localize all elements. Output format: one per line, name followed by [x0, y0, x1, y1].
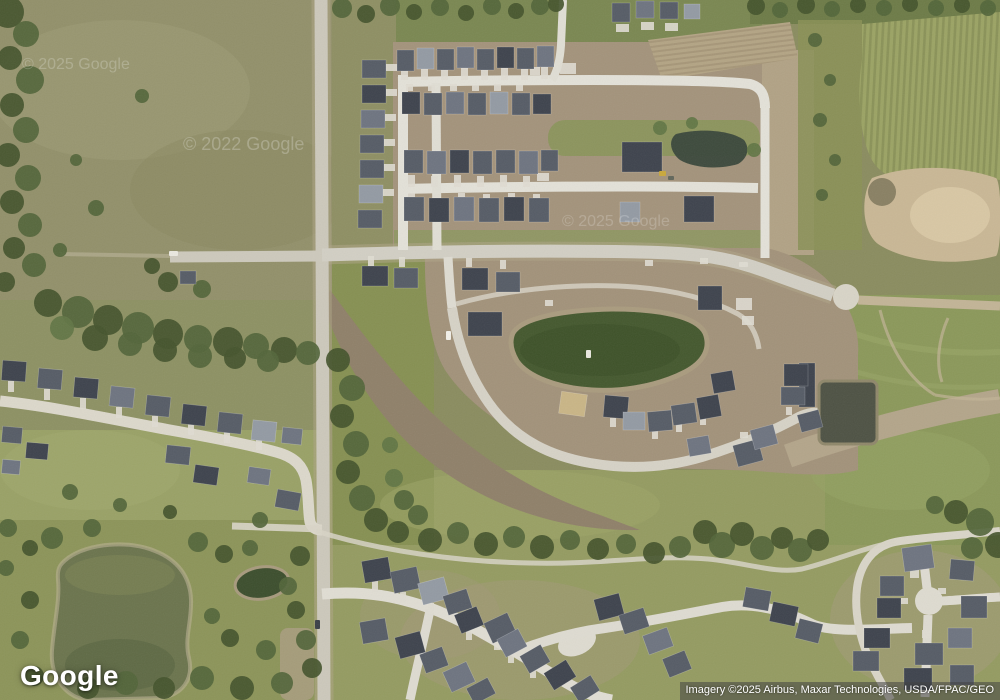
driveway-pad [736, 298, 752, 310]
driveway-pad [408, 175, 415, 187]
driveway-pad [500, 260, 506, 269]
tree [135, 89, 149, 103]
tree [530, 535, 554, 559]
house [281, 427, 303, 445]
tree [18, 213, 42, 237]
tree [339, 375, 365, 401]
driveway-pad [541, 67, 548, 79]
tree [944, 500, 968, 524]
tree [256, 640, 276, 660]
tree [290, 546, 310, 566]
house [915, 643, 943, 665]
house [402, 92, 420, 114]
driveway-pad [428, 85, 435, 91]
house [742, 587, 771, 611]
tree [83, 519, 101, 537]
tree [587, 538, 609, 560]
tree [22, 253, 46, 277]
driveway-pad [384, 164, 395, 171]
house [864, 628, 890, 648]
driveway-pad [472, 85, 479, 91]
house [359, 185, 383, 203]
driveway-pad [80, 398, 86, 409]
tree [163, 505, 177, 519]
house [519, 151, 538, 174]
tree [153, 677, 175, 699]
driveway-pad [401, 70, 408, 80]
tree [287, 601, 305, 619]
rect-basin [819, 381, 877, 444]
tree [252, 512, 268, 528]
driveway-pad [450, 84, 457, 91]
driveway-pad [786, 407, 792, 415]
house [404, 150, 423, 173]
house [457, 47, 474, 68]
tree [41, 527, 63, 549]
vehicle [668, 176, 674, 180]
tree [829, 154, 841, 166]
driveway-pad [922, 630, 930, 638]
house [37, 368, 63, 390]
driveway-pad [441, 70, 448, 80]
tree [730, 522, 754, 546]
house [687, 435, 712, 457]
house [877, 598, 901, 618]
tree [34, 289, 62, 317]
tree [242, 540, 258, 556]
map-watermark: © 2022 Google [183, 134, 304, 154]
driveway-pad [400, 592, 406, 603]
driveway-pad [537, 173, 549, 181]
street-spur [232, 526, 322, 529]
house [559, 391, 588, 416]
house [362, 266, 388, 286]
tree [357, 5, 375, 23]
house [462, 268, 488, 290]
tree [418, 528, 442, 552]
tree [808, 33, 822, 47]
driveway-pad [545, 300, 553, 306]
driveway-pad [641, 22, 654, 30]
tree [824, 74, 836, 86]
tree [406, 4, 422, 20]
tree [190, 666, 214, 690]
tree [686, 117, 698, 129]
house [1, 360, 26, 382]
driveway-pad [116, 407, 122, 418]
driveway-pad [386, 89, 397, 96]
driveway-pad [152, 416, 158, 427]
driveway-pad [188, 424, 194, 435]
house [397, 50, 414, 71]
driveway-pad [645, 260, 653, 266]
vehicle [659, 171, 666, 176]
imagery-attribution: Imagery ©2025 Airbus, Maxar Technologies… [680, 682, 1000, 700]
tree [387, 521, 409, 543]
house [247, 467, 271, 486]
house [853, 651, 879, 671]
tree [296, 630, 316, 650]
house [450, 150, 469, 173]
driveway-pad [501, 68, 508, 80]
excavation-dark-spot [868, 178, 896, 206]
house [660, 2, 678, 19]
house [25, 442, 48, 460]
tree [747, 143, 761, 157]
driveway-pad [44, 389, 50, 400]
house [429, 198, 449, 222]
tree [13, 21, 39, 47]
driveway-pad [500, 175, 507, 187]
house [696, 394, 721, 419]
house [901, 544, 934, 572]
tree [382, 437, 398, 453]
tree [326, 348, 350, 372]
driveway-pad [652, 431, 658, 439]
house [622, 142, 662, 172]
driveway-pad [256, 440, 262, 450]
road-bulb [833, 284, 859, 310]
tree [13, 117, 39, 143]
driveway-pad [383, 189, 394, 196]
tree [215, 545, 233, 563]
tree [118, 332, 142, 356]
tree [750, 536, 774, 560]
tree [560, 530, 580, 550]
house [529, 198, 549, 222]
vehicle [446, 331, 451, 340]
tree [53, 243, 67, 257]
house [517, 48, 534, 69]
house [359, 618, 388, 644]
house [512, 93, 530, 115]
house [496, 150, 515, 173]
house [533, 94, 551, 114]
tree [0, 190, 24, 214]
driveway-pad [665, 23, 678, 31]
main-road-west [170, 256, 322, 257]
driveway-pad [224, 432, 230, 443]
driveway-pad [481, 70, 488, 80]
driveway-pad [516, 85, 523, 91]
map-watermark: © 2025 Google [22, 56, 130, 73]
driveway-pad [372, 581, 378, 592]
map-watermark: © 2025 Google [562, 213, 670, 230]
tree [224, 347, 246, 369]
driveway-pad [610, 418, 616, 427]
tree [144, 258, 160, 274]
house [360, 160, 384, 178]
driveway-pad [938, 588, 946, 594]
house [360, 135, 384, 153]
tree [772, 2, 788, 18]
tree [364, 508, 388, 532]
satellite-map[interactable]: © 2025 Google© 2022 Google© 2025 Google … [0, 0, 1000, 700]
tree [82, 325, 108, 351]
tree [653, 121, 667, 135]
tree [230, 676, 254, 700]
tree [11, 631, 29, 649]
google-logo[interactable]: Google [20, 660, 119, 692]
house [1, 459, 20, 475]
house [362, 85, 386, 103]
drainage-green-band [798, 20, 862, 250]
tree [813, 113, 827, 127]
tree [876, 0, 892, 16]
house [454, 197, 474, 221]
tree [221, 629, 239, 647]
house [781, 387, 805, 405]
house [358, 210, 382, 228]
driveway-pad [477, 176, 484, 187]
house [362, 60, 386, 78]
tree [980, 0, 996, 16]
house [961, 596, 987, 618]
tree [926, 496, 944, 514]
house [193, 464, 219, 485]
tree [474, 532, 498, 556]
tree [824, 1, 840, 17]
tree [188, 344, 212, 368]
house [275, 489, 302, 511]
tree [807, 529, 829, 551]
house [446, 92, 464, 114]
house [497, 47, 514, 68]
house [361, 557, 391, 583]
house [784, 364, 808, 386]
tree [394, 490, 414, 510]
tree [302, 658, 322, 678]
retention-pond-deep [520, 324, 680, 376]
tree [447, 522, 469, 544]
house [949, 559, 975, 581]
tree [158, 272, 178, 292]
driveway-pad [428, 603, 434, 613]
driveway-pad [742, 316, 754, 325]
driveway-pad [466, 258, 472, 267]
house [684, 196, 714, 222]
tree [3, 237, 25, 259]
house [473, 151, 492, 174]
house [181, 404, 207, 426]
driveway-pad [454, 175, 461, 187]
tree [22, 540, 38, 556]
driveway-pad [386, 64, 397, 71]
house [623, 412, 645, 430]
driveway-pad [368, 256, 374, 266]
house [1, 426, 22, 444]
house [417, 48, 434, 69]
farm-track [60, 254, 170, 256]
dirt-road-east [858, 300, 1000, 306]
vehicle [315, 620, 320, 629]
tree [816, 189, 828, 201]
excavation-sand [910, 187, 990, 243]
house [684, 4, 700, 19]
house [948, 628, 972, 648]
driveway-pad [523, 176, 530, 187]
tree [257, 350, 279, 372]
house [647, 410, 673, 432]
house [698, 286, 722, 310]
house [496, 272, 520, 292]
house [424, 93, 442, 115]
tree [458, 5, 474, 21]
driveway-pad [421, 69, 428, 80]
tree [0, 93, 24, 117]
tree [330, 404, 354, 428]
tree [70, 154, 82, 166]
tree [508, 3, 524, 19]
house [180, 271, 196, 284]
driveway-pad [494, 84, 501, 91]
house [165, 445, 191, 465]
driveway-pad [616, 24, 629, 32]
driveway-pad [8, 381, 14, 392]
house [504, 197, 524, 221]
driveway-pad [461, 68, 468, 80]
driveway-pad [384, 139, 395, 146]
tree [21, 591, 39, 609]
tree [188, 532, 208, 552]
satellite-imagery-canvas: © 2025 Google© 2022 Google© 2025 Google [0, 0, 1000, 700]
tree [204, 608, 220, 624]
tree [343, 431, 369, 457]
house [671, 402, 698, 425]
driveway-pad [560, 63, 576, 74]
house [394, 268, 418, 288]
vehicle [739, 262, 748, 267]
tree [928, 0, 944, 16]
street-stub-pond [448, 257, 452, 308]
tree [271, 672, 293, 694]
house [251, 420, 277, 442]
tree [296, 341, 320, 365]
driveway-pad [740, 432, 748, 438]
tree [503, 526, 525, 548]
tree [153, 338, 177, 362]
house [490, 92, 508, 114]
driveway-pad [431, 176, 438, 187]
driveway-pad [700, 258, 708, 264]
driveway-pad [521, 69, 528, 80]
tree [643, 542, 665, 564]
tree [50, 316, 74, 340]
house [710, 370, 735, 394]
driveway-pad [385, 114, 396, 121]
house [109, 386, 135, 408]
house [361, 110, 385, 128]
tree [15, 165, 41, 191]
house [404, 197, 424, 221]
house [145, 395, 171, 417]
subdivision-street-south [399, 186, 758, 189]
house [880, 576, 904, 596]
tree [408, 505, 428, 525]
house [636, 1, 654, 18]
house [217, 412, 243, 434]
tree [616, 534, 636, 554]
vehicle [169, 251, 178, 256]
house [73, 377, 99, 399]
crop-field-northeast [859, 12, 1000, 182]
house [537, 46, 554, 67]
tree [349, 485, 375, 511]
house [477, 49, 494, 70]
house [612, 3, 630, 22]
house [468, 93, 486, 115]
tree [279, 577, 297, 595]
house [437, 49, 454, 70]
tree [385, 469, 403, 487]
tree [961, 537, 983, 559]
house [541, 150, 558, 171]
tree [336, 460, 360, 484]
tree [966, 508, 994, 536]
house [427, 151, 446, 174]
tree [113, 498, 127, 512]
driveway-pad [399, 257, 405, 267]
large-pond-shallow [65, 555, 175, 595]
tree [62, 484, 78, 500]
tree [669, 536, 691, 558]
tree [88, 200, 104, 216]
house [468, 312, 502, 336]
driveway-pad [406, 84, 413, 91]
vehicle [586, 350, 591, 358]
house [479, 198, 499, 222]
